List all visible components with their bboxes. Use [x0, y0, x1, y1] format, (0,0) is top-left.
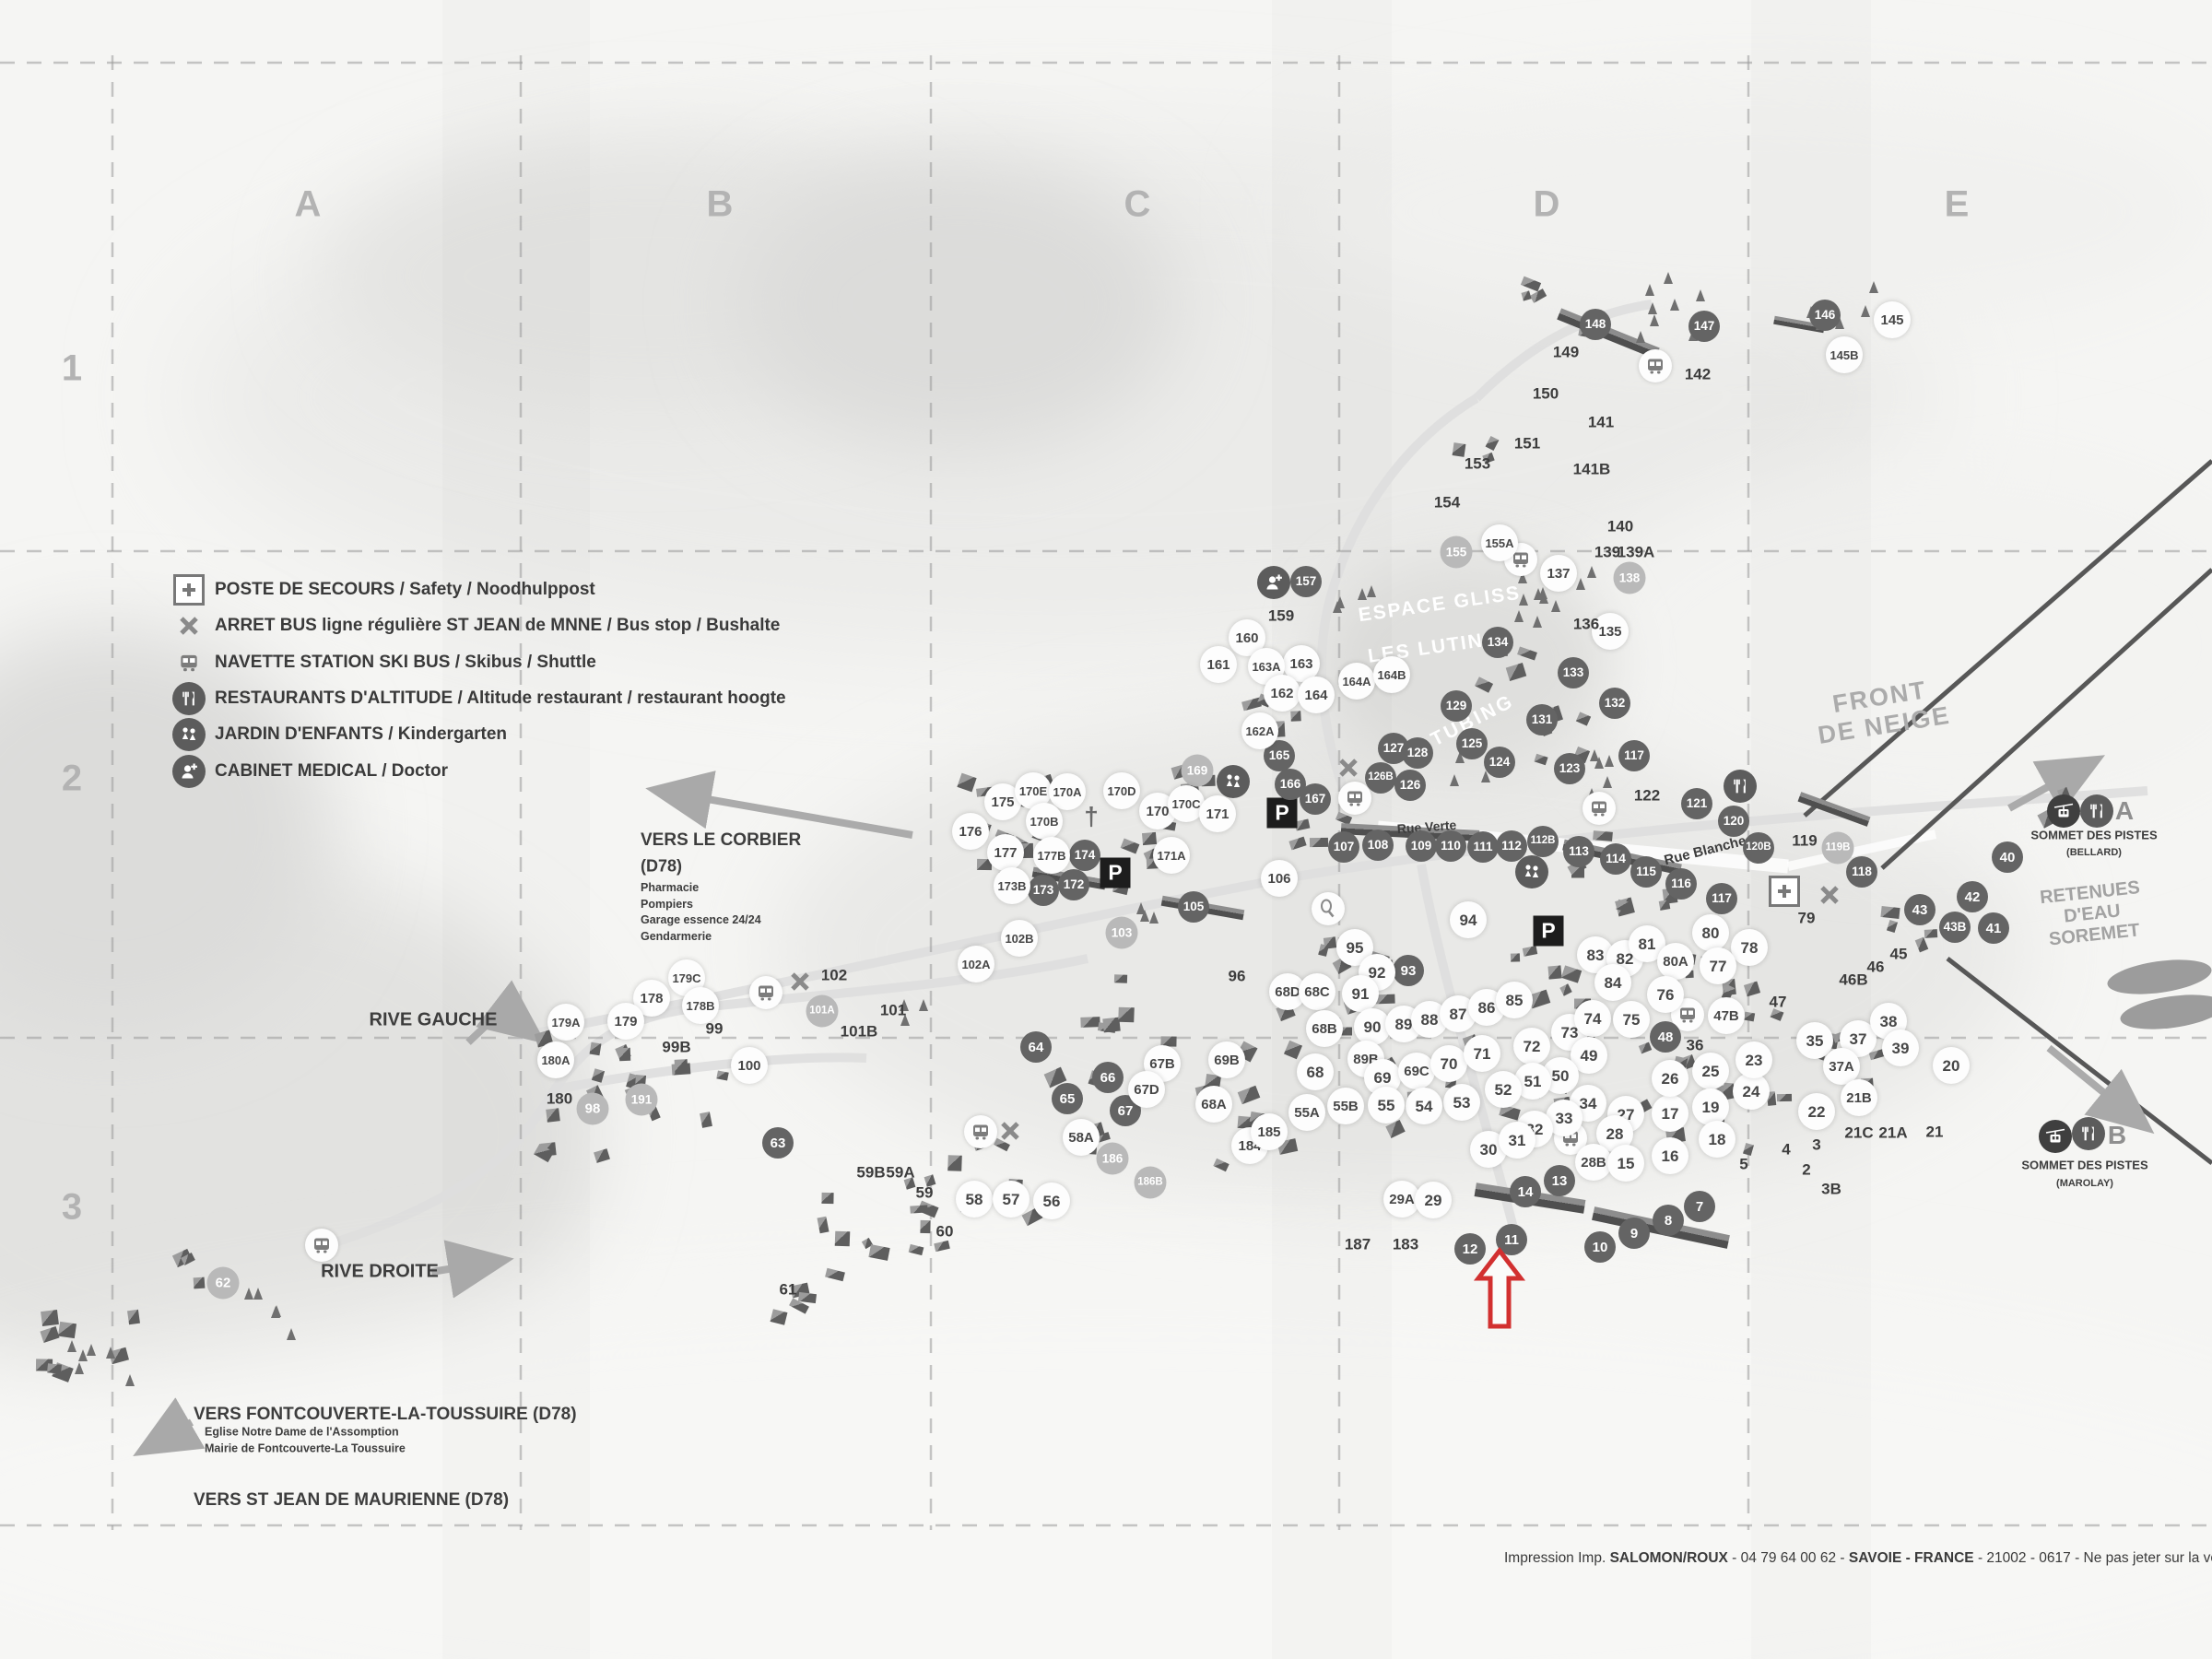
marker-17: 17: [1652, 1095, 1688, 1132]
marker-153: 153: [1465, 456, 1490, 472]
marker-128: 128: [1402, 737, 1433, 769]
restaurant-icon: [2072, 1117, 2105, 1150]
marker-109: 109: [1406, 830, 1437, 862]
marker-25: 25: [1692, 1053, 1729, 1089]
grid-label-2: 2: [62, 759, 82, 800]
marker-167: 167: [1300, 783, 1331, 815]
gondola-icon: [2039, 1120, 2072, 1153]
label-marolay: (MAROLAY): [2056, 1178, 2113, 1189]
marker-65: 65: [1052, 1083, 1083, 1114]
marker-24: 24: [1733, 1073, 1770, 1110]
kindergarten-icon: [1217, 765, 1250, 798]
marker-119: 119: [1792, 833, 1817, 849]
marker-170D: 170D: [1103, 772, 1140, 809]
shuttle-bus-icon: [177, 651, 201, 675]
building: [821, 1193, 833, 1204]
tree-icon: [75, 1362, 84, 1374]
marker-176: 176: [952, 813, 989, 850]
marker-64: 64: [1020, 1031, 1052, 1063]
marker-120B: 120B: [1743, 832, 1774, 864]
building: [1511, 953, 1520, 961]
marker-68: 68: [1297, 1053, 1334, 1090]
tree-icon: [1367, 585, 1376, 597]
marker-41: 41: [1978, 912, 2009, 944]
marker-68B: 68B: [1306, 1010, 1343, 1047]
marker-154: 154: [1434, 495, 1460, 511]
marker-99: 99: [706, 1021, 724, 1037]
marker-63: 63: [762, 1127, 794, 1159]
marker-59B: 59B: [856, 1165, 885, 1181]
marker-117: 117: [1618, 740, 1650, 771]
building: [1310, 838, 1328, 847]
marker-3: 3: [1812, 1137, 1820, 1153]
marker-26: 26: [1652, 1060, 1688, 1097]
tree-icon: [287, 1328, 296, 1340]
marker-93: 93: [1393, 955, 1424, 986]
marker-46B: 46B: [1839, 972, 1867, 988]
marker-94: 94: [1450, 901, 1487, 938]
marker-108: 108: [1362, 829, 1394, 861]
marker-57: 57: [993, 1181, 1030, 1218]
marker-79: 79: [1798, 911, 1816, 926]
marker-80: 80: [1692, 914, 1729, 951]
tennis-icon: [1312, 892, 1345, 925]
marker-132: 132: [1599, 688, 1630, 719]
marker-179A: 179A: [547, 1004, 584, 1041]
marker-103: 103: [1106, 917, 1138, 949]
x-icon: [789, 971, 811, 993]
marker-8: 8: [1653, 1205, 1684, 1236]
tree-icon: [1335, 596, 1345, 608]
label-rive-gauche: RIVE GAUCHE: [370, 1010, 498, 1031]
marker-67D: 67D: [1128, 1071, 1165, 1108]
tree-icon: [244, 1288, 253, 1300]
building: [194, 1277, 206, 1289]
building: [1114, 974, 1127, 982]
building: [1659, 900, 1671, 911]
marker-112: 112: [1496, 830, 1527, 862]
tree-icon: [67, 1340, 76, 1352]
marker-52: 52: [1485, 1071, 1522, 1108]
marker-42: 42: [1957, 881, 1988, 912]
marker-131: 131: [1526, 704, 1558, 735]
marker-61: 61: [780, 1282, 797, 1298]
marker-111: 111: [1467, 831, 1499, 863]
marker-85: 85: [1496, 982, 1533, 1018]
marker-20: 20: [1933, 1047, 1970, 1084]
building: [619, 1048, 630, 1061]
marker-141B: 141B: [1573, 462, 1611, 477]
marker-118: 118: [1846, 856, 1877, 888]
medical-icon: [172, 755, 206, 788]
marker-177: 177: [987, 834, 1024, 871]
marker-47B: 47B: [1708, 997, 1745, 1034]
x-icon: [1818, 884, 1841, 906]
marker-155: 155: [1441, 536, 1473, 569]
marker-71: 71: [1464, 1035, 1500, 1072]
marker-15: 15: [1607, 1145, 1644, 1182]
legend-item-label: NAVETTE STATION SKI BUS / Skibus / Shutt…: [215, 653, 596, 673]
first-aid-icon: [173, 574, 205, 606]
marker-178B: 178B: [682, 987, 719, 1024]
label-eglise-notre-dame-de-l-assomption-: Eglise Notre Dame de l'AssomptionMairie …: [205, 1425, 406, 1457]
marker-46: 46: [1867, 959, 1885, 975]
marker-171: 171: [1199, 795, 1236, 832]
tree-icon: [87, 1344, 96, 1356]
kindergarten-icon: [1515, 855, 1548, 888]
marker-157: 157: [1290, 566, 1322, 597]
restaurant-icon: [2080, 794, 2113, 828]
footer-text: SAVOIE - FRANCE: [1849, 1550, 1974, 1566]
x-icon: [1337, 757, 1359, 779]
legend-item-label: CABINET MEDICAL / Doctor: [215, 761, 448, 782]
building: [1142, 832, 1157, 845]
marker-40: 40: [1992, 841, 2023, 873]
marker-102A: 102A: [958, 946, 994, 982]
marker-4: 4: [1782, 1142, 1790, 1158]
marker-164: 164: [1298, 677, 1335, 713]
marker-140: 140: [1607, 519, 1633, 535]
building: [1547, 965, 1561, 979]
marker-58: 58: [956, 1181, 993, 1218]
tree-icon: [1636, 331, 1645, 343]
marker-115: 115: [1630, 856, 1662, 888]
marker-101B: 101B: [841, 1024, 878, 1040]
marker-149: 149: [1553, 345, 1579, 360]
marker-22: 22: [1798, 1093, 1835, 1130]
tree-icon: [253, 1288, 263, 1300]
marker-145B: 145B: [1826, 336, 1863, 373]
marker-173B: 173B: [994, 867, 1030, 904]
marker-14: 14: [1510, 1176, 1541, 1207]
marker-98: 98: [577, 1093, 609, 1125]
building: [947, 1155, 962, 1171]
marker-148: 148: [1580, 309, 1611, 340]
marker-146: 146: [1809, 300, 1841, 331]
marker-120: 120: [1718, 806, 1749, 837]
legend-item-label: ARRET BUS ligne régulière ST JEAN de MNN…: [215, 616, 780, 636]
bus-icon: [1583, 792, 1616, 825]
label-d78: (D78): [641, 857, 682, 877]
marker-139A: 139A: [1618, 545, 1655, 560]
marker-161: 161: [1200, 646, 1237, 683]
marker-76: 76: [1647, 976, 1684, 1013]
building: [1744, 1012, 1755, 1022]
marker-183: 183: [1393, 1237, 1418, 1253]
marker-21C: 21C: [1844, 1125, 1873, 1141]
grid-label-A: A: [295, 184, 322, 226]
marker-126: 126: [1394, 770, 1426, 801]
building: [910, 1205, 928, 1213]
tree-icon: [1648, 302, 1657, 314]
marker-179: 179: [607, 1003, 644, 1040]
marker-122: 122: [1634, 788, 1660, 804]
medical-icon: [1257, 566, 1290, 599]
marker-172: 172: [1058, 869, 1089, 900]
marker-99B: 99B: [662, 1040, 690, 1055]
restaurant-icon: [1724, 770, 1757, 803]
label-rive-droite: RIVE DROITE: [321, 1262, 439, 1283]
marker-121: 121: [1681, 788, 1712, 819]
marker-151: 151: [1514, 436, 1540, 452]
bus-stop-x-icon: [178, 615, 200, 637]
marker-150: 150: [1533, 386, 1559, 402]
tree-icon: [106, 1347, 115, 1359]
marker-2: 2: [1802, 1162, 1810, 1178]
marker-10: 10: [1584, 1231, 1616, 1263]
label-sommet-des-pistes: SOMMET DES PISTES: [2021, 1159, 2147, 1172]
grid-label-1: 1: [62, 348, 82, 390]
marker-43: 43: [1904, 894, 1935, 925]
marker-170B: 170B: [1026, 803, 1063, 840]
marker-28B: 28B: [1575, 1144, 1612, 1181]
bus-icon: [964, 1115, 997, 1148]
tree-icon: [1645, 284, 1654, 296]
tree-icon: [1539, 592, 1548, 604]
building: [835, 1231, 851, 1247]
marker-102: 102: [821, 968, 847, 983]
marker-101: 101: [880, 1003, 906, 1018]
marker-19: 19: [1692, 1088, 1729, 1125]
tree-icon: [1605, 755, 1614, 767]
marker-117: 117: [1706, 883, 1737, 914]
label-vers-st-jean-de-maurienne-d78: VERS ST JEAN DE MAURIENNE (D78): [194, 1490, 509, 1511]
tree-icon: [1594, 757, 1604, 769]
tree-icon: [1650, 314, 1659, 326]
label-sommet-des-pistes: SOMMET DES PISTES: [2030, 829, 2157, 842]
label-b: B: [2108, 1121, 2126, 1150]
marker-55A: 55A: [1288, 1094, 1325, 1131]
tree-icon: [1869, 281, 1878, 293]
building: [590, 1042, 602, 1056]
building: [58, 1322, 76, 1338]
marker-55B: 55B: [1327, 1088, 1364, 1124]
marker-186B: 186B: [1135, 1167, 1167, 1199]
firstaid-icon: [1769, 876, 1800, 907]
marker-133: 133: [1558, 657, 1589, 688]
marker-124: 124: [1484, 747, 1515, 778]
church-icon: †: [1084, 802, 1099, 831]
legend-item-label: RESTAURANTS D'ALTITUDE / Altitude restau…: [215, 688, 786, 709]
marker-186: 186: [1097, 1143, 1129, 1175]
legend-item-label: POSTE DE SECOURS / Safety / Noodhulppost: [215, 580, 595, 600]
marker-107: 107: [1328, 831, 1359, 863]
marker-21: 21: [1926, 1124, 1944, 1140]
marker-101A: 101A: [806, 995, 839, 1028]
tree-icon: [1670, 299, 1679, 311]
marker-138: 138: [1614, 562, 1646, 594]
marker-106: 106: [1261, 860, 1298, 897]
marker-126B: 126B: [1365, 762, 1396, 794]
tree-icon: [1664, 272, 1673, 284]
marker-68C: 68C: [1299, 973, 1335, 1010]
marker-147: 147: [1688, 311, 1720, 342]
marker-47: 47: [1770, 994, 1787, 1010]
tree-icon: [272, 1305, 281, 1317]
marker-102B: 102B: [1001, 920, 1038, 957]
tree-icon: [1603, 776, 1612, 788]
footer-text: - 04 79 64 00 62 -: [1728, 1550, 1849, 1566]
marker-84: 84: [1594, 964, 1631, 1001]
marker-164A: 164A: [1338, 663, 1375, 700]
marker-60: 60: [936, 1224, 954, 1240]
label-bellard: (BELLARD): [2066, 847, 2122, 858]
footer-text: - 21002 - 0617 - Ne pas jeter sur la voi…: [1974, 1550, 2212, 1566]
marker-125: 125: [1456, 728, 1488, 759]
building: [41, 1310, 59, 1326]
grid-label-C: C: [1124, 184, 1151, 226]
building: [798, 1292, 817, 1303]
marker-53: 53: [1443, 1084, 1480, 1121]
marker-70: 70: [1430, 1045, 1467, 1082]
marker-75: 75: [1613, 1001, 1650, 1038]
tree-icon: [1861, 305, 1870, 317]
marker-59A: 59A: [886, 1165, 914, 1181]
tree-icon: [919, 999, 928, 1011]
marker-54: 54: [1406, 1088, 1442, 1124]
marker-16: 16: [1652, 1137, 1688, 1174]
marker-142: 142: [1685, 367, 1711, 382]
marker-45: 45: [1890, 947, 1908, 962]
marker-62: 62: [207, 1267, 240, 1300]
building: [1080, 1017, 1100, 1028]
building: [1777, 1094, 1792, 1101]
tree-icon: [1136, 902, 1146, 914]
marker-191: 191: [626, 1084, 658, 1116]
marker-91: 91: [1342, 975, 1379, 1012]
marker-164B: 164B: [1373, 656, 1410, 693]
marker-58A: 58A: [1063, 1119, 1100, 1156]
parking-icon: P: [1267, 798, 1298, 829]
marker-177B: 177B: [1033, 837, 1070, 874]
marker-155A: 155A: [1481, 524, 1518, 561]
marker-170A: 170A: [1049, 773, 1086, 810]
footer-text: SALOMON/ROUX: [1610, 1550, 1728, 1566]
marker-136: 136: [1573, 617, 1599, 632]
bus-icon: [1338, 782, 1371, 815]
label-vers-fontcouverte-la-toussuire-d78: VERS FONTCOUVERTE-LA-TOUSSUIRE (D78): [194, 1405, 577, 1425]
kindergarten-icon: [172, 718, 206, 751]
footer-text: Impression Imp.: [1504, 1550, 1610, 1566]
marker-7: 7: [1684, 1191, 1715, 1222]
label-retenues-d-eau-soremet: RETENUES D'EAUSOREMET: [2030, 877, 2156, 952]
marker-114: 114: [1600, 843, 1631, 875]
marker-123: 123: [1554, 753, 1585, 784]
marker-129: 129: [1441, 690, 1472, 722]
marker-162: 162: [1264, 675, 1300, 712]
building: [1880, 906, 1900, 919]
marker-180: 180: [547, 1091, 572, 1107]
building: [1593, 830, 1613, 841]
marker-43B: 43B: [1939, 912, 1971, 943]
marker-72: 72: [1513, 1028, 1550, 1065]
marker-169: 169: [1182, 755, 1214, 787]
building: [1118, 1007, 1135, 1023]
highlight-arrow: [1473, 1245, 1526, 1332]
marker-116: 116: [1665, 868, 1697, 900]
marker-174: 174: [1069, 840, 1100, 871]
marker-173: 173: [1028, 875, 1059, 906]
building: [127, 1310, 140, 1325]
marker-110: 110: [1435, 830, 1466, 862]
marker-39: 39: [1882, 1030, 1919, 1066]
marker-69B: 69B: [1208, 1041, 1245, 1078]
label-vers-le-corbier: VERS LE CORBIER: [641, 830, 801, 851]
building: [1324, 936, 1336, 948]
marker-36: 36: [1687, 1038, 1704, 1053]
marker-66: 66: [1092, 1062, 1124, 1093]
building: [920, 1220, 930, 1233]
marker-5: 5: [1739, 1157, 1747, 1172]
building: [47, 1363, 62, 1374]
building: [1924, 929, 1937, 938]
marker-3B: 3B: [1821, 1182, 1841, 1197]
marker-29: 29: [1415, 1182, 1452, 1218]
marker-159: 159: [1268, 608, 1294, 624]
bus-icon: [749, 976, 782, 1009]
marker-113: 113: [1563, 836, 1594, 867]
bus-icon: [1639, 349, 1672, 382]
label-a: A: [2115, 796, 2134, 826]
grid-label-D: D: [1534, 184, 1560, 226]
building: [675, 1059, 688, 1074]
tree-icon: [1576, 578, 1585, 590]
resort-village-map: POSTE DE SECOURS / Safety / Noodhulppost…: [0, 0, 2212, 1659]
tree-icon: [1514, 610, 1524, 622]
legend-item-label: JARDIN D'ENFANTS / Kindergarten: [215, 724, 507, 745]
marker-180A: 180A: [537, 1041, 574, 1078]
marker-9: 9: [1618, 1218, 1650, 1249]
marker-187: 187: [1345, 1237, 1371, 1253]
building: [546, 1108, 560, 1123]
marker-96: 96: [1229, 969, 1246, 984]
grid-label-3: 3: [62, 1187, 82, 1229]
marker-134: 134: [1482, 627, 1513, 658]
tree-icon: [1358, 588, 1367, 600]
x-icon: [999, 1120, 1021, 1142]
parking-icon: P: [1534, 916, 1564, 947]
marker-31: 31: [1499, 1122, 1535, 1159]
gondola-icon: [2047, 794, 2080, 828]
label-pharmacie-pompiers-garage-essence-: PharmaciePompiersGarage essence 24/24Gen…: [641, 880, 761, 945]
marker-68A: 68A: [1195, 1086, 1232, 1123]
parking-icon: P: [1100, 858, 1131, 888]
bus-icon: [305, 1229, 338, 1262]
marker-77: 77: [1700, 947, 1736, 984]
marker-145: 145: [1874, 301, 1911, 338]
marker-80A: 80A: [1657, 943, 1694, 980]
marker-23: 23: [1735, 1041, 1772, 1078]
marker-74: 74: [1574, 1000, 1611, 1037]
marker-137: 137: [1540, 555, 1577, 592]
marker-105: 105: [1178, 891, 1209, 923]
tree-icon: [1533, 616, 1542, 628]
marker-141: 141: [1588, 415, 1614, 430]
tree-icon: [1450, 774, 1459, 786]
marker-119B: 119B: [1822, 832, 1854, 865]
marker-13: 13: [1544, 1165, 1575, 1196]
tree-icon: [125, 1374, 135, 1386]
marker-69C: 69C: [1398, 1053, 1435, 1089]
restaurant-icon: [172, 682, 206, 715]
marker-162A: 162A: [1241, 712, 1278, 749]
tree-icon: [1587, 566, 1596, 578]
marker-100: 100: [731, 1047, 768, 1084]
grid-label-E: E: [1945, 184, 1970, 226]
print-footer: Impression Imp. SALOMON/ROUX - 04 79 64 …: [1504, 1550, 2212, 1567]
tree-icon: [1551, 600, 1560, 612]
marker-185: 185: [1251, 1113, 1288, 1150]
